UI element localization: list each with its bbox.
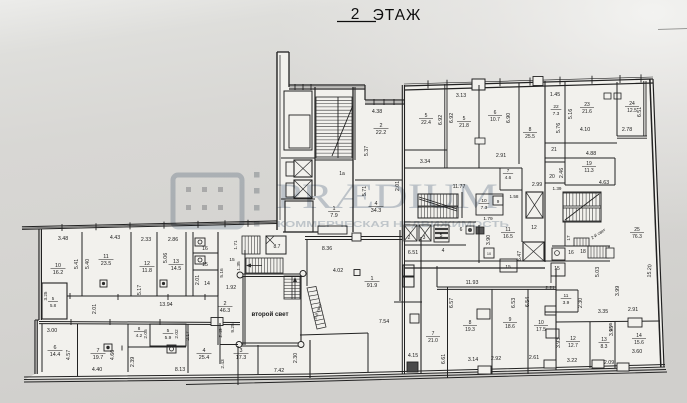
svg-text:4.38: 4.38 bbox=[372, 109, 382, 115]
svg-text:19.7: 19.7 bbox=[93, 355, 104, 361]
svg-text:2.01: 2.01 bbox=[195, 275, 201, 285]
svg-text:6.47: 6.47 bbox=[517, 251, 523, 261]
svg-text:4.2: 4.2 bbox=[136, 333, 143, 338]
svg-text:21.0: 21.0 bbox=[428, 338, 438, 344]
svg-text:1.35: 1.35 bbox=[236, 261, 242, 271]
svg-text:6.57: 6.57 bbox=[449, 298, 455, 308]
svg-text:3.00: 3.00 bbox=[47, 328, 57, 334]
svg-text:3.99: 3.99 bbox=[615, 286, 621, 296]
svg-text:16.5: 16.5 bbox=[503, 234, 513, 240]
svg-text:1.95: 1.95 bbox=[608, 322, 613, 331]
svg-text:3.22: 3.22 bbox=[567, 358, 577, 364]
svg-text:17.5: 17.5 bbox=[536, 327, 546, 333]
svg-text:4.66: 4.66 bbox=[110, 350, 116, 360]
svg-text:7.42: 7.42 bbox=[274, 368, 284, 374]
svg-text:11.93: 11.93 bbox=[466, 280, 479, 286]
svg-text:16: 16 bbox=[202, 246, 208, 252]
svg-text:15: 15 bbox=[505, 264, 511, 270]
svg-text:2.86: 2.86 bbox=[168, 237, 178, 243]
svg-text:1.39: 1.39 bbox=[553, 186, 562, 191]
svg-text:3.14: 3.14 bbox=[468, 357, 478, 363]
svg-text:10.7: 10.7 bbox=[490, 117, 500, 123]
svg-text:6.92: 6.92 bbox=[438, 115, 444, 125]
svg-text:2.39: 2.39 bbox=[130, 357, 136, 367]
svg-text:2.61: 2.61 bbox=[529, 355, 539, 361]
svg-text:7.3: 7.3 bbox=[553, 111, 560, 117]
svg-text:3.34: 3.34 bbox=[420, 159, 430, 165]
svg-text:2.92: 2.92 bbox=[491, 356, 501, 362]
svg-text:25.4: 25.4 bbox=[199, 355, 210, 361]
svg-text:15.20: 15.20 bbox=[647, 264, 654, 278]
svg-text:2.43: 2.43 bbox=[220, 359, 226, 369]
svg-text:6.54: 6.54 bbox=[525, 297, 531, 307]
svg-text:7.54: 7.54 bbox=[379, 319, 389, 325]
svg-text:7: 7 bbox=[507, 168, 510, 173]
svg-text:3.25: 3.25 bbox=[43, 291, 48, 300]
svg-text:2: 2 bbox=[351, 6, 360, 23]
svg-text:3.13: 3.13 bbox=[456, 93, 466, 99]
svg-text:6.53: 6.53 bbox=[511, 298, 517, 308]
svg-text:18.6: 18.6 bbox=[505, 324, 515, 330]
svg-text:8.13: 8.13 bbox=[175, 367, 185, 373]
svg-text:2.30: 2.30 bbox=[293, 353, 299, 363]
svg-text:16.2: 16.2 bbox=[53, 270, 64, 276]
svg-text:4.6: 4.6 bbox=[505, 175, 512, 180]
svg-text:14.4: 14.4 bbox=[50, 352, 61, 358]
svg-text:2.78: 2.78 bbox=[622, 127, 632, 133]
svg-text:PRÆDIUM: PRÆDIUM bbox=[276, 176, 498, 216]
svg-text:4.63: 4.63 bbox=[599, 180, 609, 186]
svg-text:21.8: 21.8 bbox=[459, 123, 469, 129]
svg-text:3.35: 3.35 bbox=[598, 309, 608, 315]
svg-text:12.7: 12.7 bbox=[568, 343, 578, 349]
svg-text:5.16: 5.16 bbox=[219, 268, 225, 278]
svg-text:1.71: 1.71 bbox=[233, 240, 239, 250]
svg-text:2.46: 2.46 bbox=[559, 168, 565, 178]
svg-text:2.91: 2.91 bbox=[628, 307, 638, 313]
svg-text:6.51: 6.51 bbox=[637, 107, 643, 117]
svg-text:20: 20 bbox=[549, 174, 555, 180]
svg-text:5.76: 5.76 bbox=[556, 123, 562, 133]
svg-text:15: 15 bbox=[554, 266, 560, 272]
svg-text:второй свет: второй свет bbox=[251, 311, 288, 318]
svg-text:8.3: 8.3 bbox=[601, 344, 608, 350]
svg-text:13.94: 13.94 bbox=[159, 302, 172, 308]
svg-text:21: 21 bbox=[551, 147, 557, 153]
svg-text:4.10: 4.10 bbox=[580, 127, 590, 133]
svg-text:21.6: 21.6 bbox=[582, 109, 592, 115]
svg-text:2.02: 2.02 bbox=[174, 329, 180, 339]
svg-text:4.43: 4.43 bbox=[110, 235, 120, 241]
svg-text:2.01: 2.01 bbox=[92, 304, 98, 314]
svg-text:8.7: 8.7 bbox=[274, 244, 281, 250]
svg-text:19.3: 19.3 bbox=[465, 327, 475, 333]
svg-text:6.51: 6.51 bbox=[408, 250, 418, 256]
svg-text:11.3: 11.3 bbox=[584, 168, 594, 174]
svg-text:2.09: 2.09 bbox=[604, 360, 614, 366]
svg-text:6.61: 6.61 bbox=[441, 354, 447, 364]
svg-text:15: 15 bbox=[229, 257, 235, 263]
svg-text:22.2: 22.2 bbox=[376, 130, 387, 136]
svg-text:23.5: 23.5 bbox=[101, 261, 112, 267]
svg-text:5.37: 5.37 bbox=[364, 146, 370, 156]
svg-text:КОММЕРЧЕСКАЯ НЕДВИЖИМОСТЬ: КОММЕРЧЕСКАЯ НЕДВИЖИМОСТЬ bbox=[277, 219, 509, 229]
svg-text:5.03: 5.03 bbox=[595, 267, 601, 277]
svg-text:3: 3 bbox=[423, 235, 426, 241]
svg-text:5.06: 5.06 bbox=[163, 253, 169, 263]
svg-text:4: 4 bbox=[442, 248, 445, 254]
svg-text:14.5: 14.5 bbox=[171, 266, 182, 272]
svg-text:4.88: 4.88 bbox=[586, 151, 596, 157]
svg-text:25.5: 25.5 bbox=[525, 134, 535, 140]
svg-text:2.30: 2.30 bbox=[578, 298, 584, 308]
svg-text:12: 12 bbox=[531, 225, 537, 231]
svg-text:6.90: 6.90 bbox=[506, 113, 512, 123]
svg-text:2: 2 bbox=[408, 235, 411, 241]
svg-text:3.90: 3.90 bbox=[486, 235, 492, 245]
svg-text:76.3: 76.3 bbox=[632, 234, 642, 240]
svg-text:8: 8 bbox=[138, 326, 141, 331]
svg-text:5.16: 5.16 bbox=[568, 109, 574, 119]
svg-text:22.4: 22.4 bbox=[421, 120, 431, 126]
svg-text:3.9: 3.9 bbox=[563, 300, 570, 306]
svg-text:4.15: 4.15 bbox=[408, 353, 418, 359]
svg-text:5.17: 5.17 bbox=[137, 285, 143, 295]
svg-text:9.25: 9.25 bbox=[230, 323, 236, 333]
svg-text:1.58: 1.58 bbox=[510, 194, 519, 199]
svg-text:4.40: 4.40 bbox=[92, 367, 102, 373]
svg-text:46.3: 46.3 bbox=[220, 308, 231, 314]
svg-text:2.33: 2.33 bbox=[141, 237, 151, 243]
svg-text:2.21: 2.21 bbox=[545, 285, 555, 291]
svg-text:8.36: 8.36 bbox=[322, 246, 332, 252]
svg-text:10: 10 bbox=[487, 252, 491, 256]
svg-text:11.8: 11.8 bbox=[142, 268, 152, 274]
svg-text:4.02: 4.02 bbox=[333, 268, 343, 274]
svg-text:17: 17 bbox=[566, 235, 571, 241]
svg-text:2.05: 2.05 bbox=[143, 329, 149, 339]
svg-text:3.60: 3.60 bbox=[632, 349, 642, 355]
svg-text:16: 16 bbox=[568, 250, 574, 256]
svg-text:5.9: 5.9 bbox=[165, 335, 172, 341]
svg-text:5.40: 5.40 bbox=[85, 259, 91, 269]
svg-text:6.92: 6.92 bbox=[449, 113, 455, 123]
svg-text:14: 14 bbox=[204, 281, 210, 287]
svg-text:2.49: 2.49 bbox=[218, 328, 224, 338]
svg-text:4.57: 4.57 bbox=[66, 350, 72, 360]
svg-text:5.41: 5.41 bbox=[74, 259, 80, 269]
svg-text:3.93: 3.93 bbox=[556, 338, 562, 348]
svg-text:3.48: 3.48 bbox=[58, 236, 68, 242]
svg-text:12.5: 12.5 bbox=[627, 108, 637, 114]
svg-text:18: 18 bbox=[580, 249, 586, 255]
svg-text:5.8: 5.8 bbox=[50, 303, 57, 308]
svg-text:1.92: 1.92 bbox=[226, 285, 236, 291]
svg-text:1.45: 1.45 bbox=[550, 92, 560, 98]
svg-text:91.9: 91.9 bbox=[367, 283, 378, 289]
svg-text:2.99: 2.99 bbox=[532, 182, 542, 188]
svg-text:15.6: 15.6 bbox=[634, 340, 644, 346]
svg-text:5: 5 bbox=[440, 233, 443, 239]
svg-text:ЭТАЖ: ЭТАЖ bbox=[373, 7, 422, 24]
svg-text:2.91: 2.91 bbox=[496, 153, 506, 159]
svg-text:17.3: 17.3 bbox=[236, 355, 247, 361]
